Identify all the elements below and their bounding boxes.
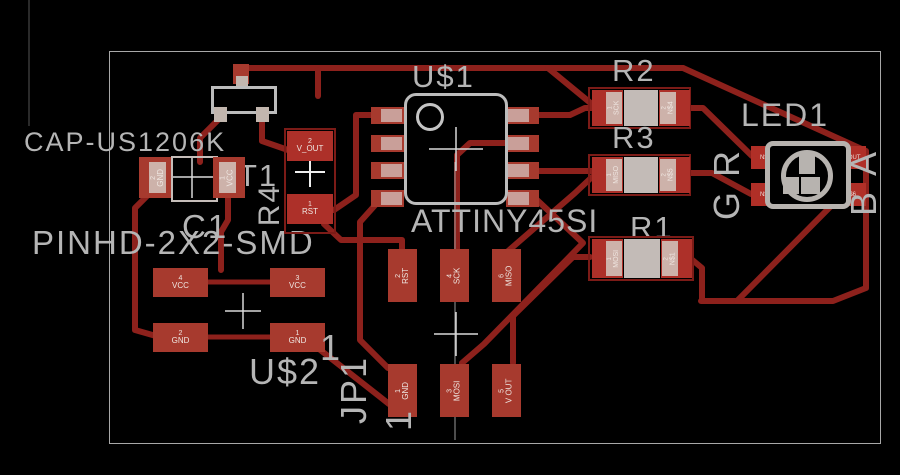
r2-right-pin-number: 2 [661,106,667,109]
led1-ref-label[interactable]: LED1 [741,97,829,134]
led1-die-left [783,177,799,194]
r4-ref-label[interactable]: R4 [255,175,285,235]
jp1-pad5-name: V OUT [506,378,514,402]
component-r1[interactable]: 1MOSI 2N$1 [588,236,696,283]
pcb-board-view: T1 2GND 1VCC CAP-US1206K C1 PINHD-2X2-SM… [0,0,900,475]
component-r4[interactable]: 2V_OUT 1RST [284,128,336,234]
component-c1[interactable]: 2GND 1VCC [139,156,245,198]
r2-left-pin-name: SCK [613,101,620,115]
trace-segment[interactable] [548,68,593,105]
u1-pin2-tin [381,137,402,150]
r1-left-pin-name: MOSI [613,250,620,268]
led1-pin-a-label: A [847,143,881,183]
c1-body-outline [171,156,218,202]
u2-pad-1-gnd[interactable]: 1GND [270,323,325,352]
u2-pad4-name: VCC [172,282,189,290]
jp1-ref-text: JP1 [333,356,375,424]
r1-pad-mosi-tin: 1MOSI [606,241,622,276]
jp1-pad-2-rst[interactable]: 2RST [388,249,417,302]
jp1-pad-6-miso[interactable]: 6MISO [492,249,521,302]
component-jp1[interactable]: 2RST 4SCK 6MISO 1GND 3MOSI 5V OUT [388,249,521,417]
u2-pad2-name: GND [172,337,190,345]
r3-pad-miso-tin: 1MISO [606,159,622,191]
r4-bottom-pin-name: RST [302,208,318,216]
r4-ref-text: R4 [253,184,287,226]
t1-pad-left[interactable] [214,107,227,122]
u1-ref-label[interactable]: U$1 [412,59,475,95]
trace-segment[interactable] [537,108,594,115]
u1-pin4-tin [381,192,402,205]
led1-pin-g-text: G [706,190,748,220]
led1-pin-b-label: B [847,183,881,223]
u2-pad-4-vcc[interactable]: 4VCC [153,268,208,297]
r4-pad-vout[interactable]: 2V_OUT [287,131,333,161]
component-u1[interactable] [371,93,539,205]
led1-pin-g-label: G [710,185,744,225]
c1-gnd-pin-name: GND [157,169,165,187]
r1-right-pin-number: 2 [663,257,669,260]
u2-pad-3-vcc[interactable]: 3VCC [270,268,325,297]
c1-package-label[interactable]: CAP-US1206K [24,127,226,158]
r2-right-pin-name: N$4 [667,102,674,115]
led1-die-right [801,177,820,194]
c1-vcc-pin-name: VCC [227,169,235,186]
r2-ref-label[interactable]: R2 [612,53,656,89]
led1-die-top [799,153,815,174]
r1-pad-n1-tin: 2N$1 [662,241,678,276]
jp1-pin1-marker: 1 [379,398,419,442]
r4-pad-rst[interactable]: 1RST [287,194,333,224]
component-t1[interactable] [205,60,280,130]
r2-left-pin-number: 1 [607,106,613,109]
jp1-pin1-text: 1 [378,409,420,431]
r3-body [624,157,658,193]
led1-pin-r-label: R [710,143,744,183]
u2-ref-label[interactable]: U$2 [249,351,321,393]
jp1-pad6-name: MISO [506,265,514,285]
jp1-pad-4-sck[interactable]: 4SCK [440,249,469,302]
u2-pad1-name: GND [289,337,307,345]
trace-segment[interactable] [737,202,835,301]
jp1-pad4-name: SCK [454,267,462,283]
u1-pin8-tin [508,109,529,122]
c1-pad-gnd-tin: 2GND [149,162,166,193]
jp1-ref-label[interactable]: JP1 [333,347,375,433]
jp1-pad-5-vout[interactable]: 5V OUT [492,364,521,417]
u1-pin1-dot [416,103,444,131]
component-u2[interactable]: 4VCC 3VCC 2GND 1GND [153,268,325,352]
trace-segment[interactable] [360,203,388,368]
led1-pin-b-text: B [843,190,885,216]
r3-right-pin-name: N$5 [667,169,674,182]
r2-pad-n4-tin: 2N$4 [660,92,676,124]
u1-pin6-tin [508,164,529,177]
led1-pin-a-text: A [843,150,885,176]
r1-body [624,239,660,278]
jp1-pad-3-mosi[interactable]: 3MOSI [440,364,469,417]
led1-pin-r-text: R [706,149,748,177]
u1-pin1-tin [381,109,402,122]
t1-pad-right[interactable] [256,107,269,122]
component-r3[interactable]: 1MISO 2N$5 [588,154,694,198]
jp1-pad3-name: MOSI [454,380,462,400]
r4-top-pin-name: V_OUT [297,145,324,153]
r3-ref-label[interactable]: R3 [612,120,656,156]
u1-pin7-tin [508,137,529,150]
r3-left-pin-name: MISO [613,166,620,184]
u1-pin3-tin [381,164,402,177]
jp1-pad2-name: RST [402,267,410,283]
jp1-pad1-name: GND [402,382,410,400]
u2-pad3-name: VCC [289,282,306,290]
r1-right-pin-name: N$1 [669,252,676,265]
u1-value-label[interactable]: ATTINY45SI [411,203,598,240]
u2-pad-2-gnd[interactable]: 2GND [153,323,208,352]
c1-pad-vcc-tin: 1VCC [219,162,236,193]
r3-pad-n5-tin: 2N$5 [660,159,676,191]
r3-right-pin-number: 2 [661,173,667,176]
